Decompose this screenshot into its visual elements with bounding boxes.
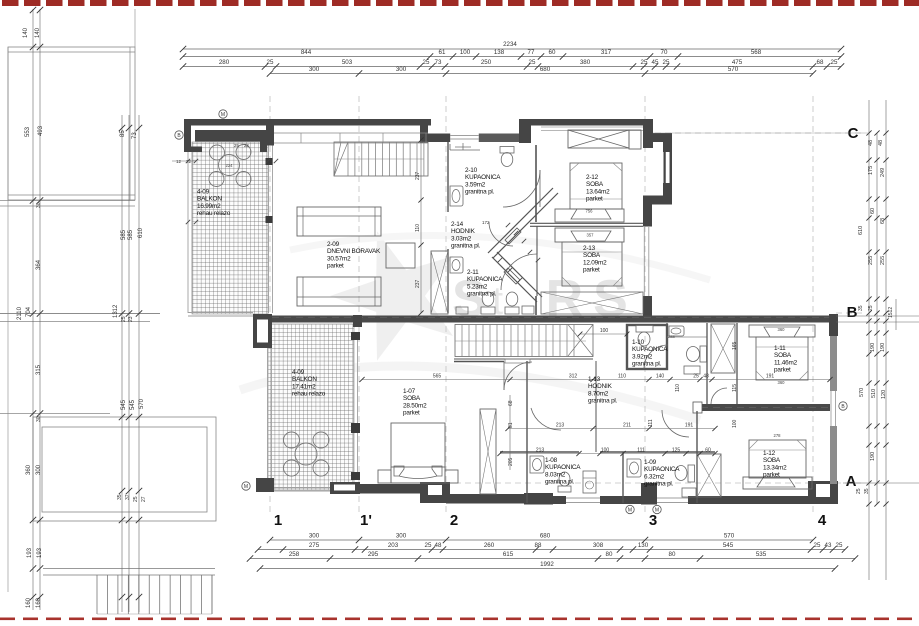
svg-text:756: 756 bbox=[586, 209, 594, 214]
svg-text:80: 80 bbox=[669, 551, 676, 558]
svg-text:615: 615 bbox=[503, 551, 514, 558]
svg-text:140: 140 bbox=[656, 374, 665, 380]
svg-text:parket: parket bbox=[327, 263, 344, 270]
svg-text:203: 203 bbox=[388, 542, 399, 549]
svg-text:111: 111 bbox=[637, 448, 645, 454]
svg-text:37: 37 bbox=[125, 494, 131, 500]
svg-text:25: 25 bbox=[868, 305, 874, 311]
svg-text:255: 255 bbox=[868, 256, 874, 265]
svg-text:25: 25 bbox=[836, 542, 843, 549]
svg-text:granitna pl.: granitna pl. bbox=[451, 243, 481, 250]
svg-text:288: 288 bbox=[668, 334, 675, 339]
svg-text:535: 535 bbox=[756, 551, 767, 558]
svg-text:25: 25 bbox=[814, 542, 821, 549]
svg-text:160: 160 bbox=[26, 597, 32, 608]
svg-text:120: 120 bbox=[881, 390, 887, 399]
svg-text:3: 3 bbox=[649, 512, 657, 529]
svg-text:130: 130 bbox=[638, 542, 649, 549]
svg-text:565: 565 bbox=[433, 374, 442, 380]
svg-text:SOBA: SOBA bbox=[763, 457, 781, 464]
svg-text:308: 308 bbox=[593, 542, 604, 549]
svg-text:granitna pl.: granitna pl. bbox=[545, 479, 575, 486]
svg-text:1-10: 1-10 bbox=[632, 339, 645, 346]
svg-text:1-07: 1-07 bbox=[403, 388, 416, 395]
svg-text:68: 68 bbox=[508, 400, 514, 406]
svg-text:25: 25 bbox=[693, 374, 699, 380]
svg-text:260: 260 bbox=[484, 542, 495, 549]
svg-text:100: 100 bbox=[600, 328, 609, 334]
svg-text:A: A bbox=[846, 473, 857, 490]
svg-text:275: 275 bbox=[309, 542, 320, 549]
svg-text:680: 680 bbox=[540, 533, 551, 540]
svg-text:125: 125 bbox=[672, 448, 681, 454]
svg-text:4: 4 bbox=[818, 512, 827, 529]
svg-text:300: 300 bbox=[309, 533, 320, 540]
svg-text:25: 25 bbox=[856, 488, 862, 494]
svg-text:165: 165 bbox=[732, 341, 738, 350]
svg-text:KUPAONICA: KUPAONICA bbox=[545, 464, 581, 471]
svg-text:SOBA: SOBA bbox=[583, 252, 601, 259]
svg-text:3.92m2: 3.92m2 bbox=[632, 353, 653, 360]
svg-text:160: 160 bbox=[36, 597, 42, 608]
svg-text:1': 1' bbox=[360, 512, 372, 529]
svg-text:30: 30 bbox=[36, 416, 42, 422]
svg-text:23: 23 bbox=[244, 143, 249, 148]
svg-text:KUPAONICA: KUPAONICA bbox=[465, 174, 501, 181]
svg-text:granitna pl.: granitna pl. bbox=[644, 481, 674, 488]
svg-text:190: 190 bbox=[880, 343, 886, 352]
svg-text:510: 510 bbox=[871, 389, 877, 398]
svg-text:140: 140 bbox=[35, 27, 41, 38]
svg-text:8.03m2: 8.03m2 bbox=[545, 471, 566, 478]
svg-text:255: 255 bbox=[880, 256, 886, 265]
svg-text:2-09: 2-09 bbox=[327, 241, 340, 248]
svg-text:3.03m2: 3.03m2 bbox=[451, 235, 472, 242]
svg-text:1: 1 bbox=[274, 512, 282, 529]
svg-text:HODNIK: HODNIK bbox=[451, 228, 476, 235]
svg-text:25: 25 bbox=[133, 496, 139, 502]
svg-text:KUPAONICA: KUPAONICA bbox=[467, 276, 503, 283]
svg-text:80: 80 bbox=[606, 551, 613, 558]
svg-text:190: 190 bbox=[870, 452, 876, 461]
svg-text:250: 250 bbox=[481, 59, 492, 66]
svg-text:138: 138 bbox=[494, 49, 505, 56]
svg-text:6.32m2: 6.32m2 bbox=[644, 473, 665, 480]
svg-text:570: 570 bbox=[724, 533, 735, 540]
svg-text:25: 25 bbox=[423, 59, 430, 66]
svg-text:27: 27 bbox=[141, 496, 147, 502]
svg-text:48: 48 bbox=[435, 542, 442, 549]
svg-text:25: 25 bbox=[831, 59, 838, 66]
svg-text:43: 43 bbox=[825, 542, 832, 549]
svg-text:granitna pl.: granitna pl. bbox=[465, 189, 495, 196]
svg-text:35: 35 bbox=[864, 488, 870, 494]
svg-text:81: 81 bbox=[508, 422, 514, 428]
svg-text:60: 60 bbox=[870, 208, 876, 214]
svg-text:KUPAONICA: KUPAONICA bbox=[644, 466, 680, 473]
svg-text:28.50m2: 28.50m2 bbox=[403, 402, 427, 409]
svg-text:M: M bbox=[628, 507, 632, 513]
svg-text:35: 35 bbox=[117, 494, 123, 500]
svg-text:545: 545 bbox=[130, 399, 136, 410]
svg-text:570: 570 bbox=[859, 388, 865, 397]
svg-text:25: 25 bbox=[529, 59, 536, 66]
svg-text:2110: 2110 bbox=[17, 306, 23, 320]
svg-text:111: 111 bbox=[648, 419, 654, 427]
svg-text:205: 205 bbox=[508, 457, 514, 466]
svg-text:85: 85 bbox=[120, 130, 126, 137]
svg-text:300: 300 bbox=[396, 66, 407, 73]
svg-text:12: 12 bbox=[176, 159, 182, 164]
svg-text:312: 312 bbox=[569, 374, 578, 380]
svg-text:25: 25 bbox=[234, 143, 239, 148]
svg-text:211: 211 bbox=[623, 423, 631, 429]
svg-text:317: 317 bbox=[601, 49, 612, 56]
svg-text:172: 172 bbox=[482, 220, 490, 225]
svg-text:SOBA: SOBA bbox=[403, 395, 421, 402]
svg-text:68: 68 bbox=[817, 59, 824, 66]
svg-text:237: 237 bbox=[415, 279, 421, 288]
svg-text:8.70m2: 8.70m2 bbox=[588, 390, 609, 397]
svg-text:parket: parket bbox=[583, 267, 600, 274]
svg-text:SOBA: SOBA bbox=[586, 181, 604, 188]
svg-text:295: 295 bbox=[368, 551, 379, 558]
svg-text:315: 315 bbox=[36, 364, 42, 375]
svg-text:2-10: 2-10 bbox=[465, 167, 478, 174]
svg-text:1-11: 1-11 bbox=[774, 345, 786, 352]
svg-text:585: 585 bbox=[121, 229, 127, 240]
svg-text:25: 25 bbox=[121, 316, 127, 322]
svg-text:1-09: 1-09 bbox=[644, 459, 657, 466]
svg-text:BALKON: BALKON bbox=[197, 196, 222, 203]
svg-text:23: 23 bbox=[128, 316, 134, 322]
svg-text:45: 45 bbox=[652, 59, 659, 66]
svg-text:60: 60 bbox=[705, 448, 711, 454]
svg-text:191: 191 bbox=[766, 374, 775, 380]
svg-text:granitna pl.: granitna pl. bbox=[588, 398, 618, 405]
svg-text:2-14: 2-14 bbox=[451, 221, 464, 228]
svg-text:280: 280 bbox=[219, 59, 230, 66]
svg-text:704: 704 bbox=[26, 306, 32, 317]
svg-text:73: 73 bbox=[435, 59, 442, 66]
svg-text:25: 25 bbox=[425, 542, 432, 549]
svg-text:2-11: 2-11 bbox=[467, 269, 479, 276]
svg-text:193: 193 bbox=[27, 547, 33, 558]
svg-text:2: 2 bbox=[450, 512, 458, 529]
svg-text:503: 503 bbox=[342, 59, 353, 66]
svg-text:88: 88 bbox=[535, 542, 542, 549]
svg-text:M: M bbox=[655, 507, 659, 513]
svg-text:360: 360 bbox=[26, 464, 32, 475]
svg-text:25: 25 bbox=[641, 59, 648, 66]
svg-text:610: 610 bbox=[138, 227, 144, 238]
svg-text:844: 844 bbox=[301, 49, 312, 56]
svg-text:300: 300 bbox=[309, 66, 320, 73]
svg-text:100: 100 bbox=[601, 448, 610, 454]
svg-text:KUPAONICA: KUPAONICA bbox=[632, 346, 668, 353]
svg-text:30.57m2: 30.57m2 bbox=[327, 255, 351, 262]
svg-text:rehau relazo: rehau relazo bbox=[292, 391, 326, 398]
svg-text:SOBA: SOBA bbox=[774, 352, 792, 359]
svg-text:140: 140 bbox=[23, 27, 29, 38]
svg-text:16.99m2: 16.99m2 bbox=[197, 203, 221, 210]
svg-text:115: 115 bbox=[732, 384, 738, 392]
svg-text:493: 493 bbox=[38, 125, 44, 136]
svg-text:568: 568 bbox=[751, 49, 762, 56]
svg-text:60: 60 bbox=[549, 49, 556, 56]
svg-text:30: 30 bbox=[36, 202, 42, 208]
svg-text:1-13: 1-13 bbox=[588, 376, 601, 383]
svg-text:175: 175 bbox=[868, 166, 874, 175]
svg-text:237: 237 bbox=[415, 171, 421, 180]
svg-text:HODNIK: HODNIK bbox=[588, 383, 613, 390]
svg-text:680: 680 bbox=[540, 66, 551, 73]
svg-text:1-12: 1-12 bbox=[763, 450, 776, 457]
svg-text:4-09: 4-09 bbox=[292, 369, 305, 376]
svg-text:224: 224 bbox=[226, 163, 234, 168]
svg-text:13.34m2: 13.34m2 bbox=[763, 464, 787, 471]
svg-text:1512: 1512 bbox=[888, 307, 894, 318]
svg-text:granitna pl.: granitna pl. bbox=[632, 361, 662, 368]
svg-text:M: M bbox=[244, 484, 248, 490]
svg-text:2-12: 2-12 bbox=[586, 174, 599, 181]
svg-text:parket: parket bbox=[763, 472, 780, 479]
svg-text:570: 570 bbox=[139, 398, 145, 409]
svg-text:25: 25 bbox=[663, 59, 670, 66]
svg-text:17.41m2: 17.41m2 bbox=[292, 383, 316, 390]
svg-text:360: 360 bbox=[778, 380, 786, 385]
svg-text:258: 258 bbox=[289, 551, 300, 558]
svg-text:380: 380 bbox=[580, 59, 591, 66]
svg-text:70: 70 bbox=[661, 49, 668, 56]
svg-text:48: 48 bbox=[703, 374, 709, 380]
svg-text:100: 100 bbox=[732, 419, 738, 428]
svg-text:213: 213 bbox=[536, 448, 545, 454]
svg-text:4-09: 4-09 bbox=[197, 189, 210, 196]
svg-text:585: 585 bbox=[128, 229, 134, 240]
svg-text:570: 570 bbox=[728, 66, 739, 73]
svg-text:5.23m2: 5.23m2 bbox=[467, 283, 488, 290]
svg-text:2234: 2234 bbox=[503, 41, 517, 48]
svg-text:C: C bbox=[848, 125, 859, 142]
svg-text:545: 545 bbox=[121, 399, 127, 410]
svg-text:300: 300 bbox=[396, 533, 407, 540]
svg-text:parket: parket bbox=[403, 410, 420, 417]
svg-text:DNEVNI BORAVAK: DNEVNI BORAVAK bbox=[327, 248, 381, 255]
svg-text:11.46m2: 11.46m2 bbox=[774, 359, 798, 366]
svg-text:475: 475 bbox=[732, 59, 743, 66]
svg-text:545: 545 bbox=[723, 542, 734, 549]
svg-text:granitna pl.: granitna pl. bbox=[467, 291, 497, 298]
svg-text:48: 48 bbox=[878, 140, 884, 146]
svg-text:100: 100 bbox=[460, 49, 471, 56]
svg-text:rehau relazo: rehau relazo bbox=[197, 210, 231, 217]
svg-text:M: M bbox=[221, 112, 225, 118]
svg-text:110: 110 bbox=[675, 384, 681, 392]
svg-text:364: 364 bbox=[36, 259, 42, 270]
svg-text:249: 249 bbox=[880, 168, 886, 177]
svg-text:77: 77 bbox=[528, 49, 535, 56]
svg-text:610: 610 bbox=[858, 226, 864, 235]
svg-text:48: 48 bbox=[868, 140, 874, 146]
svg-text:68: 68 bbox=[880, 218, 886, 224]
svg-text:BALKON: BALKON bbox=[292, 376, 317, 383]
svg-text:193: 193 bbox=[37, 547, 43, 558]
svg-text:110: 110 bbox=[415, 224, 421, 232]
svg-text:191: 191 bbox=[685, 423, 694, 429]
svg-text:213: 213 bbox=[556, 423, 565, 429]
svg-text:300: 300 bbox=[36, 464, 42, 475]
svg-text:553: 553 bbox=[25, 126, 31, 137]
svg-text:278: 278 bbox=[774, 433, 782, 438]
svg-text:61: 61 bbox=[439, 49, 446, 56]
svg-text:parket: parket bbox=[586, 196, 603, 203]
svg-text:357: 357 bbox=[587, 233, 595, 238]
svg-text:13.64m2: 13.64m2 bbox=[586, 188, 610, 195]
svg-text:110: 110 bbox=[618, 374, 626, 380]
svg-text:25: 25 bbox=[267, 59, 274, 66]
svg-text:B: B bbox=[847, 304, 858, 321]
svg-text:360: 360 bbox=[778, 327, 786, 332]
svg-text:1-08: 1-08 bbox=[545, 457, 558, 464]
svg-text:73: 73 bbox=[132, 132, 138, 139]
svg-text:parket: parket bbox=[774, 367, 791, 374]
svg-text:3.59m2: 3.59m2 bbox=[465, 181, 486, 188]
svg-text:35: 35 bbox=[858, 305, 864, 311]
svg-text:1312: 1312 bbox=[113, 304, 119, 318]
svg-text:12.09m2: 12.09m2 bbox=[583, 259, 607, 266]
svg-text:190: 190 bbox=[870, 343, 876, 352]
svg-text:2-13: 2-13 bbox=[583, 245, 596, 252]
svg-text:1992: 1992 bbox=[540, 561, 554, 568]
